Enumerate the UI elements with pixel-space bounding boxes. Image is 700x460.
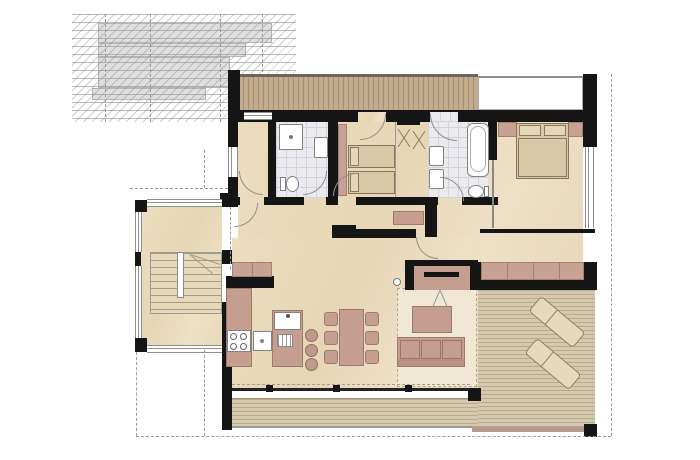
cooktop [227, 330, 251, 352]
bathtub-inner [470, 126, 486, 172]
toilet-bowl [468, 185, 484, 198]
sofa [397, 337, 465, 367]
window-entry-west [135, 266, 142, 338]
wall-living-corner [332, 225, 356, 238]
window-north [244, 112, 272, 120]
bed-blanket-line [518, 138, 567, 177]
stair-railing [177, 252, 184, 298]
dining-chair [365, 312, 379, 326]
wall-hall-segment [326, 197, 338, 205]
window-west [228, 147, 238, 177]
floor-plan-canvas [0, 0, 700, 460]
roof-gridline [150, 14, 151, 122]
overhang-dash-south [136, 436, 611, 437]
terrace-step-strip [472, 426, 588, 432]
dining-chair [365, 350, 379, 364]
lounger-backrest-line [545, 310, 557, 324]
skylight-void [478, 76, 583, 110]
island-drainer [277, 334, 293, 347]
dining-chair [324, 312, 338, 326]
glazing-master-south [480, 229, 595, 233]
overhang-dash-north-entry [130, 188, 228, 189]
overhang-dash-upper [204, 150, 205, 188]
wall-hall-segment [264, 197, 304, 205]
ceiling-change-dash [230, 207, 231, 269]
clothes-rail [397, 120, 420, 125]
toilet-tank [484, 186, 489, 197]
bar-stool [305, 344, 318, 357]
overhang-dash-entry-west [136, 352, 137, 436]
glazing-mullion [333, 385, 340, 392]
burner [240, 333, 247, 340]
washbasin [429, 146, 444, 166]
wall-bath-master [488, 112, 497, 160]
dining-chair [365, 331, 379, 345]
bed-pillow [350, 147, 359, 166]
overhang-dash-east [611, 74, 612, 436]
roof-gridline [105, 14, 106, 122]
wall-living-north [356, 229, 416, 238]
bar-stool [305, 358, 318, 371]
burner [230, 343, 237, 350]
glazing-mullion [405, 385, 412, 392]
bench-column-east [584, 262, 597, 290]
wall-east [583, 74, 597, 147]
balcony-deck [228, 74, 478, 112]
bar-stool [305, 329, 318, 342]
lounger-backrest-line [541, 352, 553, 366]
roof-gridline [220, 14, 221, 122]
burner [240, 343, 247, 350]
coffee-table [412, 306, 452, 333]
sink-drain [260, 339, 264, 343]
south-deck [232, 398, 478, 428]
dining-chair [324, 331, 338, 345]
window-entry-south [147, 345, 222, 353]
wall-hall-segment [356, 197, 430, 205]
overhang-dash-entry [204, 350, 205, 436]
burner [230, 333, 237, 340]
window-master-east [585, 147, 594, 228]
window-entry-west [135, 212, 142, 252]
dining-chair [324, 350, 338, 364]
wall-entry-corner-sw [135, 338, 147, 352]
toilet-bowl [286, 176, 299, 192]
column-marker [393, 278, 401, 286]
sofa-cushion [421, 340, 441, 359]
kitchen-tall-cabinets [232, 262, 272, 277]
washbasin [314, 137, 328, 158]
wall-entry-mid [135, 252, 141, 266]
kitchen-counter [226, 288, 252, 367]
window-entry-north [147, 199, 222, 207]
wall-entry-corner [135, 200, 147, 212]
sofa-cushion [442, 340, 462, 359]
fireplace-opening [424, 272, 459, 277]
sofa-cushion [400, 340, 420, 359]
wall-balcony-end-column [228, 70, 240, 122]
hall-sideboard [393, 211, 424, 225]
sofa-backrest [398, 359, 464, 366]
hanger-cross-icon [396, 127, 428, 151]
partition-bath-master [492, 160, 494, 228]
headboard-cabinet [568, 122, 583, 137]
terrace-bench [481, 262, 584, 280]
headboard-cabinet [498, 122, 517, 137]
fireplace-body [414, 266, 470, 290]
wall-storage-bath [268, 122, 276, 198]
dining-table [339, 309, 364, 366]
glazing-mullion [266, 385, 273, 392]
shower-drain [289, 135, 293, 139]
island-faucet [286, 314, 290, 318]
bed-pillow [519, 125, 541, 136]
bed-pillow [544, 125, 566, 136]
wall-closet-hall [425, 197, 437, 237]
